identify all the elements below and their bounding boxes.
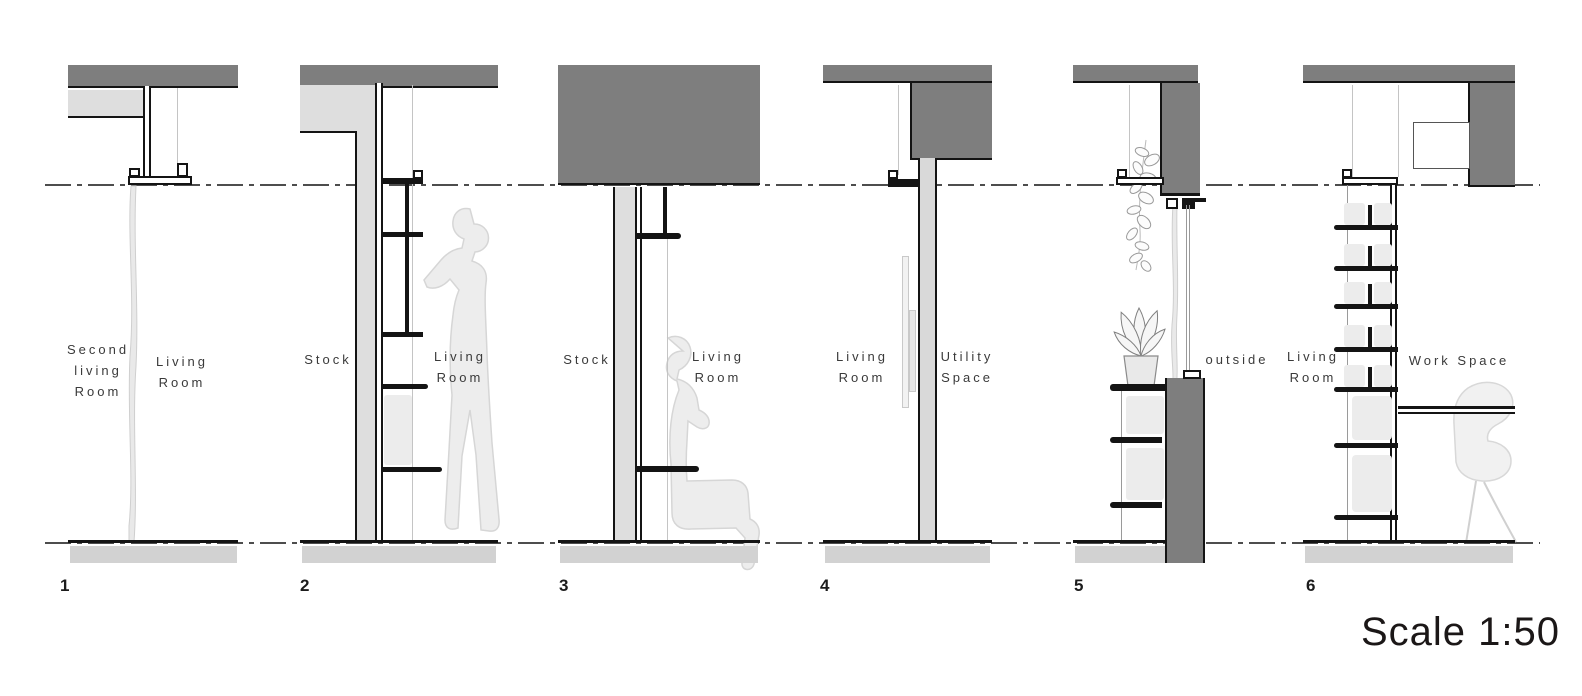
ceiling-slab bbox=[1303, 65, 1515, 83]
ceiling-slab bbox=[1073, 65, 1198, 83]
books bbox=[1344, 203, 1365, 225]
track-clip bbox=[1342, 169, 1352, 178]
room-label-second-living-room: Second living Room bbox=[58, 340, 138, 402]
floor-line bbox=[1303, 540, 1515, 543]
wall-panel bbox=[375, 83, 383, 542]
floor-slab bbox=[825, 546, 990, 563]
books bbox=[1344, 282, 1365, 304]
section-number-3: 3 bbox=[559, 576, 569, 596]
ceiling-recess bbox=[1413, 122, 1470, 169]
books bbox=[1344, 325, 1365, 347]
room-label-living-room: Living Room bbox=[1281, 347, 1345, 389]
guide-line bbox=[1352, 85, 1353, 177]
shelf-track bbox=[1342, 177, 1398, 185]
stored-item bbox=[1352, 396, 1392, 440]
ceiling-volume bbox=[558, 65, 760, 185]
room-label-living-room: Living Room bbox=[428, 347, 492, 389]
door-track bbox=[888, 179, 918, 187]
stored-item bbox=[384, 395, 412, 465]
partition-wall bbox=[143, 86, 151, 178]
shelf-support bbox=[1368, 246, 1372, 266]
shelf bbox=[1334, 515, 1398, 520]
books bbox=[1374, 203, 1392, 225]
books bbox=[1374, 282, 1392, 304]
room-label-stock: Stock bbox=[557, 350, 617, 371]
curtain-icon bbox=[1168, 205, 1182, 387]
section-number-4: 4 bbox=[820, 576, 830, 596]
floor-line bbox=[68, 540, 238, 543]
ceiling-slab bbox=[823, 65, 992, 83]
wall-panel bbox=[635, 187, 642, 542]
floor-line bbox=[1073, 540, 1167, 543]
shelf-support bbox=[1368, 327, 1372, 347]
guide-line bbox=[898, 85, 899, 175]
cabinet-shelf bbox=[1110, 437, 1162, 443]
track-clip bbox=[177, 163, 188, 177]
shelf bbox=[383, 384, 428, 389]
room-label-work-space: Work Space bbox=[1403, 351, 1515, 372]
upper-datum-line bbox=[45, 184, 1540, 186]
books bbox=[1344, 365, 1365, 387]
floor-line bbox=[558, 540, 760, 543]
floor-slab bbox=[1305, 546, 1513, 563]
shelf-support bbox=[1368, 205, 1372, 225]
room-label-living-room: Living Room bbox=[830, 347, 894, 389]
desk-top bbox=[1398, 406, 1515, 414]
section-number-5: 5 bbox=[1074, 576, 1084, 596]
room-label-outside: outside bbox=[1200, 350, 1274, 371]
guide-line bbox=[1129, 85, 1130, 177]
cabinet-top bbox=[1110, 384, 1166, 391]
shelf bbox=[383, 178, 423, 184]
glazing-line bbox=[1189, 205, 1190, 382]
shelf-support bbox=[1368, 284, 1372, 304]
section-number-6: 6 bbox=[1306, 576, 1316, 596]
stored-item bbox=[1126, 448, 1164, 500]
curtain-track bbox=[128, 176, 192, 185]
plant-pot bbox=[1124, 356, 1158, 386]
bookshelf-side bbox=[1347, 185, 1348, 540]
stock-wall bbox=[355, 85, 377, 542]
bench-seat bbox=[637, 466, 699, 472]
shelf bbox=[383, 232, 423, 237]
room-label-living-room: Living Room bbox=[150, 352, 214, 394]
floor-slab bbox=[1075, 546, 1165, 563]
section-number-2: 2 bbox=[300, 576, 310, 596]
scale-label: Scale 1:50 bbox=[1300, 610, 1560, 655]
potted-plant-icon bbox=[1112, 296, 1170, 388]
sliding-door-panel bbox=[909, 310, 916, 392]
shelf bbox=[383, 332, 423, 337]
facade-beam bbox=[1160, 83, 1200, 196]
parapet-wall bbox=[1165, 378, 1205, 563]
books bbox=[1344, 244, 1365, 266]
glazing-line bbox=[1186, 205, 1187, 382]
chair-icon bbox=[1446, 380, 1522, 545]
cabinet-shelf bbox=[1110, 502, 1162, 508]
cabinet-side bbox=[1121, 391, 1122, 541]
shelf bbox=[637, 233, 681, 239]
floor-slab bbox=[302, 546, 496, 563]
ceiling-volume bbox=[1468, 83, 1515, 187]
track-clip bbox=[1166, 198, 1178, 209]
shelf-support bbox=[663, 187, 667, 235]
track-clip bbox=[129, 168, 140, 177]
stored-item bbox=[1126, 396, 1164, 434]
section-number-1: 1 bbox=[60, 576, 70, 596]
ceiling-slab bbox=[68, 65, 238, 88]
books bbox=[1374, 365, 1392, 387]
wall-cap bbox=[1183, 370, 1201, 379]
room-label-stock: Stock bbox=[298, 350, 358, 371]
ledge-clip bbox=[1117, 169, 1127, 178]
floor-slab bbox=[70, 546, 237, 563]
books bbox=[1374, 325, 1392, 347]
shelf bbox=[1334, 225, 1398, 230]
ceiling-beam bbox=[68, 90, 146, 118]
section-details-sheet: Second living Room Living Room 1 Stock L… bbox=[0, 0, 1582, 696]
books bbox=[1374, 244, 1392, 266]
room-label-utility-space: Utility Space bbox=[934, 347, 1000, 389]
shelf bbox=[1334, 266, 1398, 271]
guide-line bbox=[667, 239, 668, 540]
shelf bbox=[1334, 443, 1398, 448]
floor-line bbox=[823, 540, 992, 543]
ceiling-volume bbox=[910, 83, 992, 160]
stored-item bbox=[1352, 455, 1392, 512]
sliding-door-panel bbox=[902, 256, 909, 408]
floor-line bbox=[300, 540, 498, 543]
track-clip bbox=[888, 170, 898, 179]
shelf-support bbox=[405, 184, 409, 336]
floor-slab bbox=[560, 546, 758, 563]
shelf-support bbox=[1368, 367, 1372, 387]
room-label-living-room: Living Room bbox=[686, 347, 750, 389]
shelf bbox=[1334, 304, 1398, 309]
plant-ledge bbox=[1116, 177, 1164, 185]
guide-line bbox=[1398, 85, 1399, 177]
ceiling-beam bbox=[300, 85, 357, 133]
shelf bbox=[383, 467, 442, 472]
